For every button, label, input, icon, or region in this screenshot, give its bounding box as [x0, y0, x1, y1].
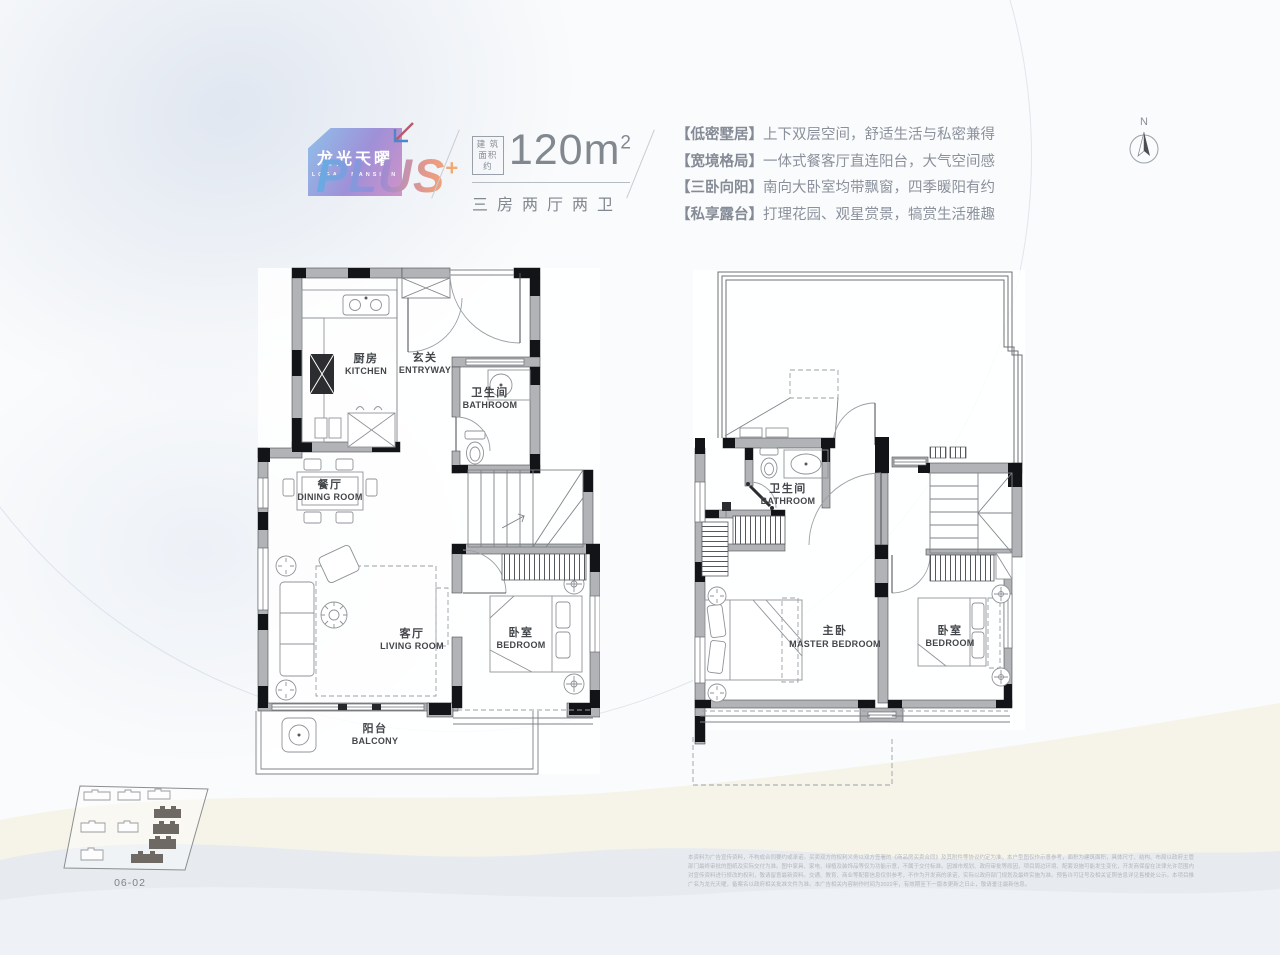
disclaimer-text: 本资料为广告宣传资料，不构成合同要约或承诺。买卖双方的权利义务以双方签署的《商品… — [688, 854, 1194, 890]
wardrobe — [502, 554, 586, 580]
floorplan-upper: 卫生间 BATHROOM 主卧 MASTER BEDROOM 卧室 BEDROO… — [678, 264, 1030, 794]
compass-north-label: N — [1122, 116, 1166, 128]
room-label-master-cn: 主卧 — [823, 623, 848, 637]
feature-item: 【宽境格局】一体式餐客厅直连阳台，大气空间感 — [676, 149, 995, 176]
area-block: 建 筑 面积约 120m2 三房两厅两卫 — [472, 126, 632, 215]
feature-item: 【私享露台】打理花园、观星赏景，犒赏生活雅趣 — [676, 202, 995, 229]
room-label-bedroom-cn: 卧室 — [938, 623, 963, 637]
plus-label: PLUS+ — [316, 152, 459, 199]
area-divider-line — [472, 182, 630, 183]
compass: N — [1122, 116, 1166, 174]
arrow-down-left-icon — [384, 120, 418, 150]
room-label-dining-en: DINING ROOM — [297, 492, 362, 502]
room-label-dining-cn: 餐厅 — [317, 477, 343, 491]
room-label-entryway-en: ENTRYWAY — [399, 365, 451, 375]
compass-icon — [1122, 129, 1166, 169]
feature-item: 【低密墅居】上下双层空间，舒适生活与私密兼得 — [676, 122, 995, 149]
room-label-bathroom-cn: 卫生间 — [471, 385, 509, 399]
room-label-bedroom-en: BEDROOM — [496, 640, 545, 650]
floorplan-lower: 厨房 KITCHEN 玄关 ENTRYWAY 卫生间 BATHROOM 餐厅 D… — [252, 266, 600, 792]
room-label-bedroom-en: BEDROOM — [925, 638, 974, 648]
room-label-bedroom-cn: 卧室 — [509, 625, 534, 639]
room-label-balcony-en: BALCONY — [352, 736, 399, 746]
area-value: 120m2 — [509, 127, 632, 174]
room-label-living-en: LIVING ROOM — [380, 641, 444, 651]
room-label-kitchen-en: KITCHEN — [345, 366, 387, 376]
room-label-master-en: MASTER BEDROOM — [789, 639, 881, 649]
room-label-bathroom-cn: 卫生间 — [769, 481, 807, 495]
room-label-living-cn: 客厅 — [399, 626, 425, 640]
feature-list: 【低密墅居】上下双层空间，舒适生活与私密兼得 【宽境格局】一体式餐客厅直连阳台，… — [676, 122, 995, 228]
room-label-entryway-cn: 玄关 — [413, 350, 438, 364]
unit-label: 06-02 — [114, 877, 146, 889]
lower-balcony-outline — [693, 737, 892, 785]
room-label-bathroom-en: BATHROOM — [761, 496, 816, 506]
room-label-bathroom-en: BATHROOM — [463, 400, 518, 410]
site-plan: 06-02 — [62, 780, 214, 898]
poster-page: 龙光天曜 LOGAN MANSION PLUS+ 建 筑 面积约 120m2 三… — [0, 0, 1280, 955]
room-label-balcony-cn: 阳台 — [363, 721, 388, 735]
feature-item: 【三卧向阳】南向大卧室均带飘窗，四季暖阳有约 — [676, 175, 995, 202]
room-label-kitchen-cn: 厨房 — [354, 351, 379, 365]
layout-text: 三房两厅两卫 — [472, 191, 632, 215]
area-prefix-label: 建 筑 面积约 — [472, 136, 504, 175]
